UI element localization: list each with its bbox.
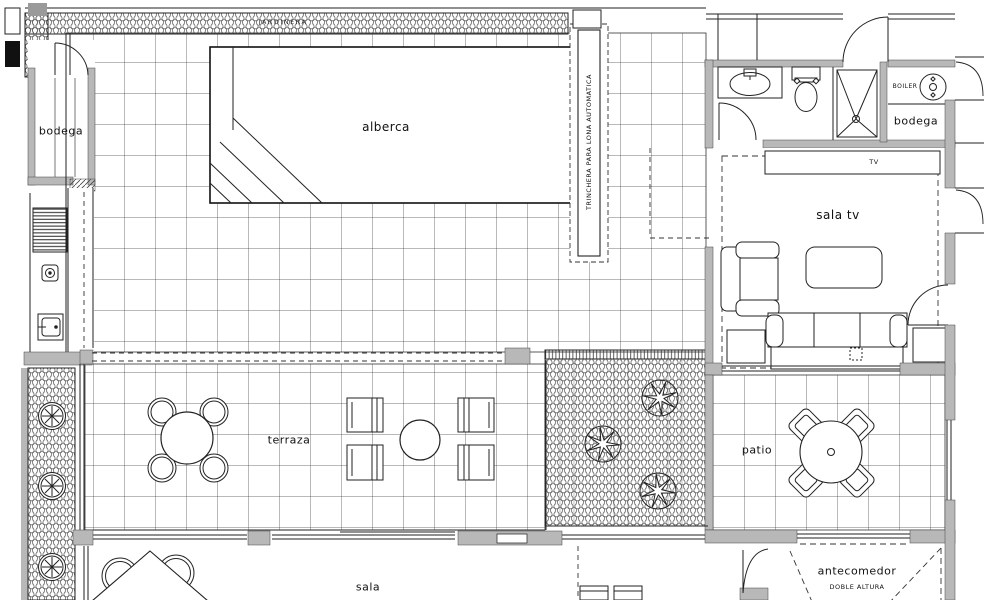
tree-icon xyxy=(39,403,66,430)
left-planter-strip xyxy=(21,368,75,600)
outdoor-kitchen-counter xyxy=(24,188,94,365)
toilet-icon xyxy=(792,67,820,112)
label-tv: TV xyxy=(869,159,878,166)
tree-icon xyxy=(39,473,66,500)
right-wall xyxy=(945,57,984,600)
label-sala: sala xyxy=(356,582,380,593)
floor-plan: JARDINERA bodega alberca TRINCHERA PARA … xyxy=(0,0,987,600)
coffee-table xyxy=(806,247,882,288)
door-arc xyxy=(843,17,888,62)
door-arc xyxy=(956,190,983,224)
floor-plan-drawing xyxy=(0,0,987,600)
armchair xyxy=(721,242,779,316)
top-boundary xyxy=(706,14,955,62)
tv-console xyxy=(765,151,940,174)
sofa xyxy=(766,313,907,369)
label-patio: patio xyxy=(742,445,772,456)
sala-tv-room xyxy=(705,148,955,375)
bench-icon xyxy=(580,586,642,600)
label-alberca: alberca xyxy=(362,121,410,133)
label-bodega-left: bodega xyxy=(39,126,83,137)
label-boiler: BOILER xyxy=(893,84,918,90)
bodega-left-room xyxy=(28,40,95,193)
side-table xyxy=(913,328,947,362)
palm-garden xyxy=(545,350,708,526)
label-sala-tv: sala tv xyxy=(816,209,859,221)
label-trinchera: TRINCHERA PARA LONA AUTOMATICA xyxy=(586,74,593,210)
label-bodega-right: bodega xyxy=(894,116,938,127)
sink-icon xyxy=(38,314,63,340)
door-arc xyxy=(956,62,983,96)
label-terraza: terraza xyxy=(268,435,311,446)
patio-table xyxy=(800,421,862,483)
label-antecomedor: antecomedor xyxy=(818,566,897,577)
label-jardinera: JARDINERA xyxy=(259,19,308,26)
sala-door-panel xyxy=(497,534,527,543)
label-doble-altura: DOBLE ALTURA xyxy=(830,584,885,591)
side-table xyxy=(727,330,765,363)
grill-icon xyxy=(33,208,67,252)
bathroom-block xyxy=(705,60,955,148)
door-arc xyxy=(743,549,768,593)
tree-icon xyxy=(39,554,66,581)
